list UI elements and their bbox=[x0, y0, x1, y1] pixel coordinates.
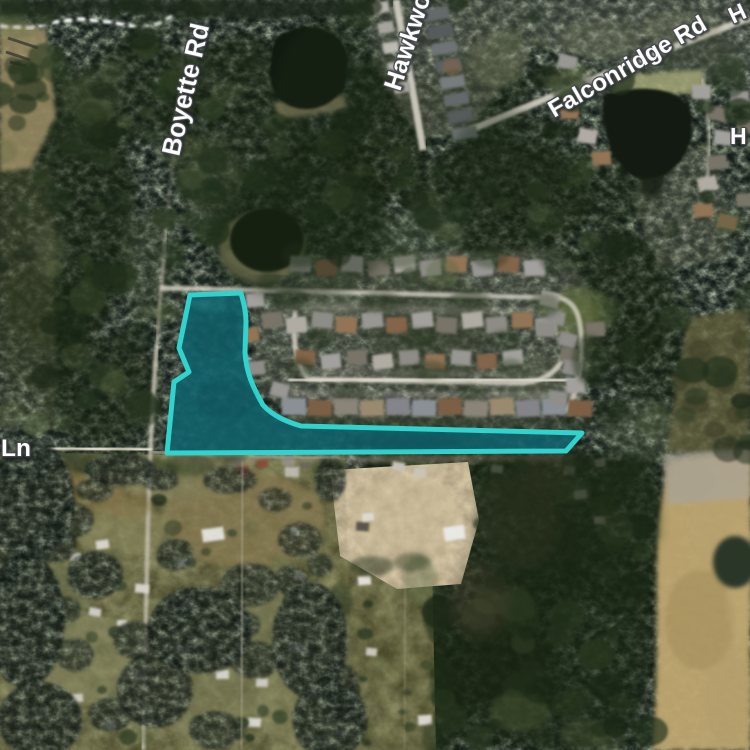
svg-text:H: H bbox=[730, 123, 747, 149]
svg-text:Ln: Ln bbox=[1, 435, 31, 462]
